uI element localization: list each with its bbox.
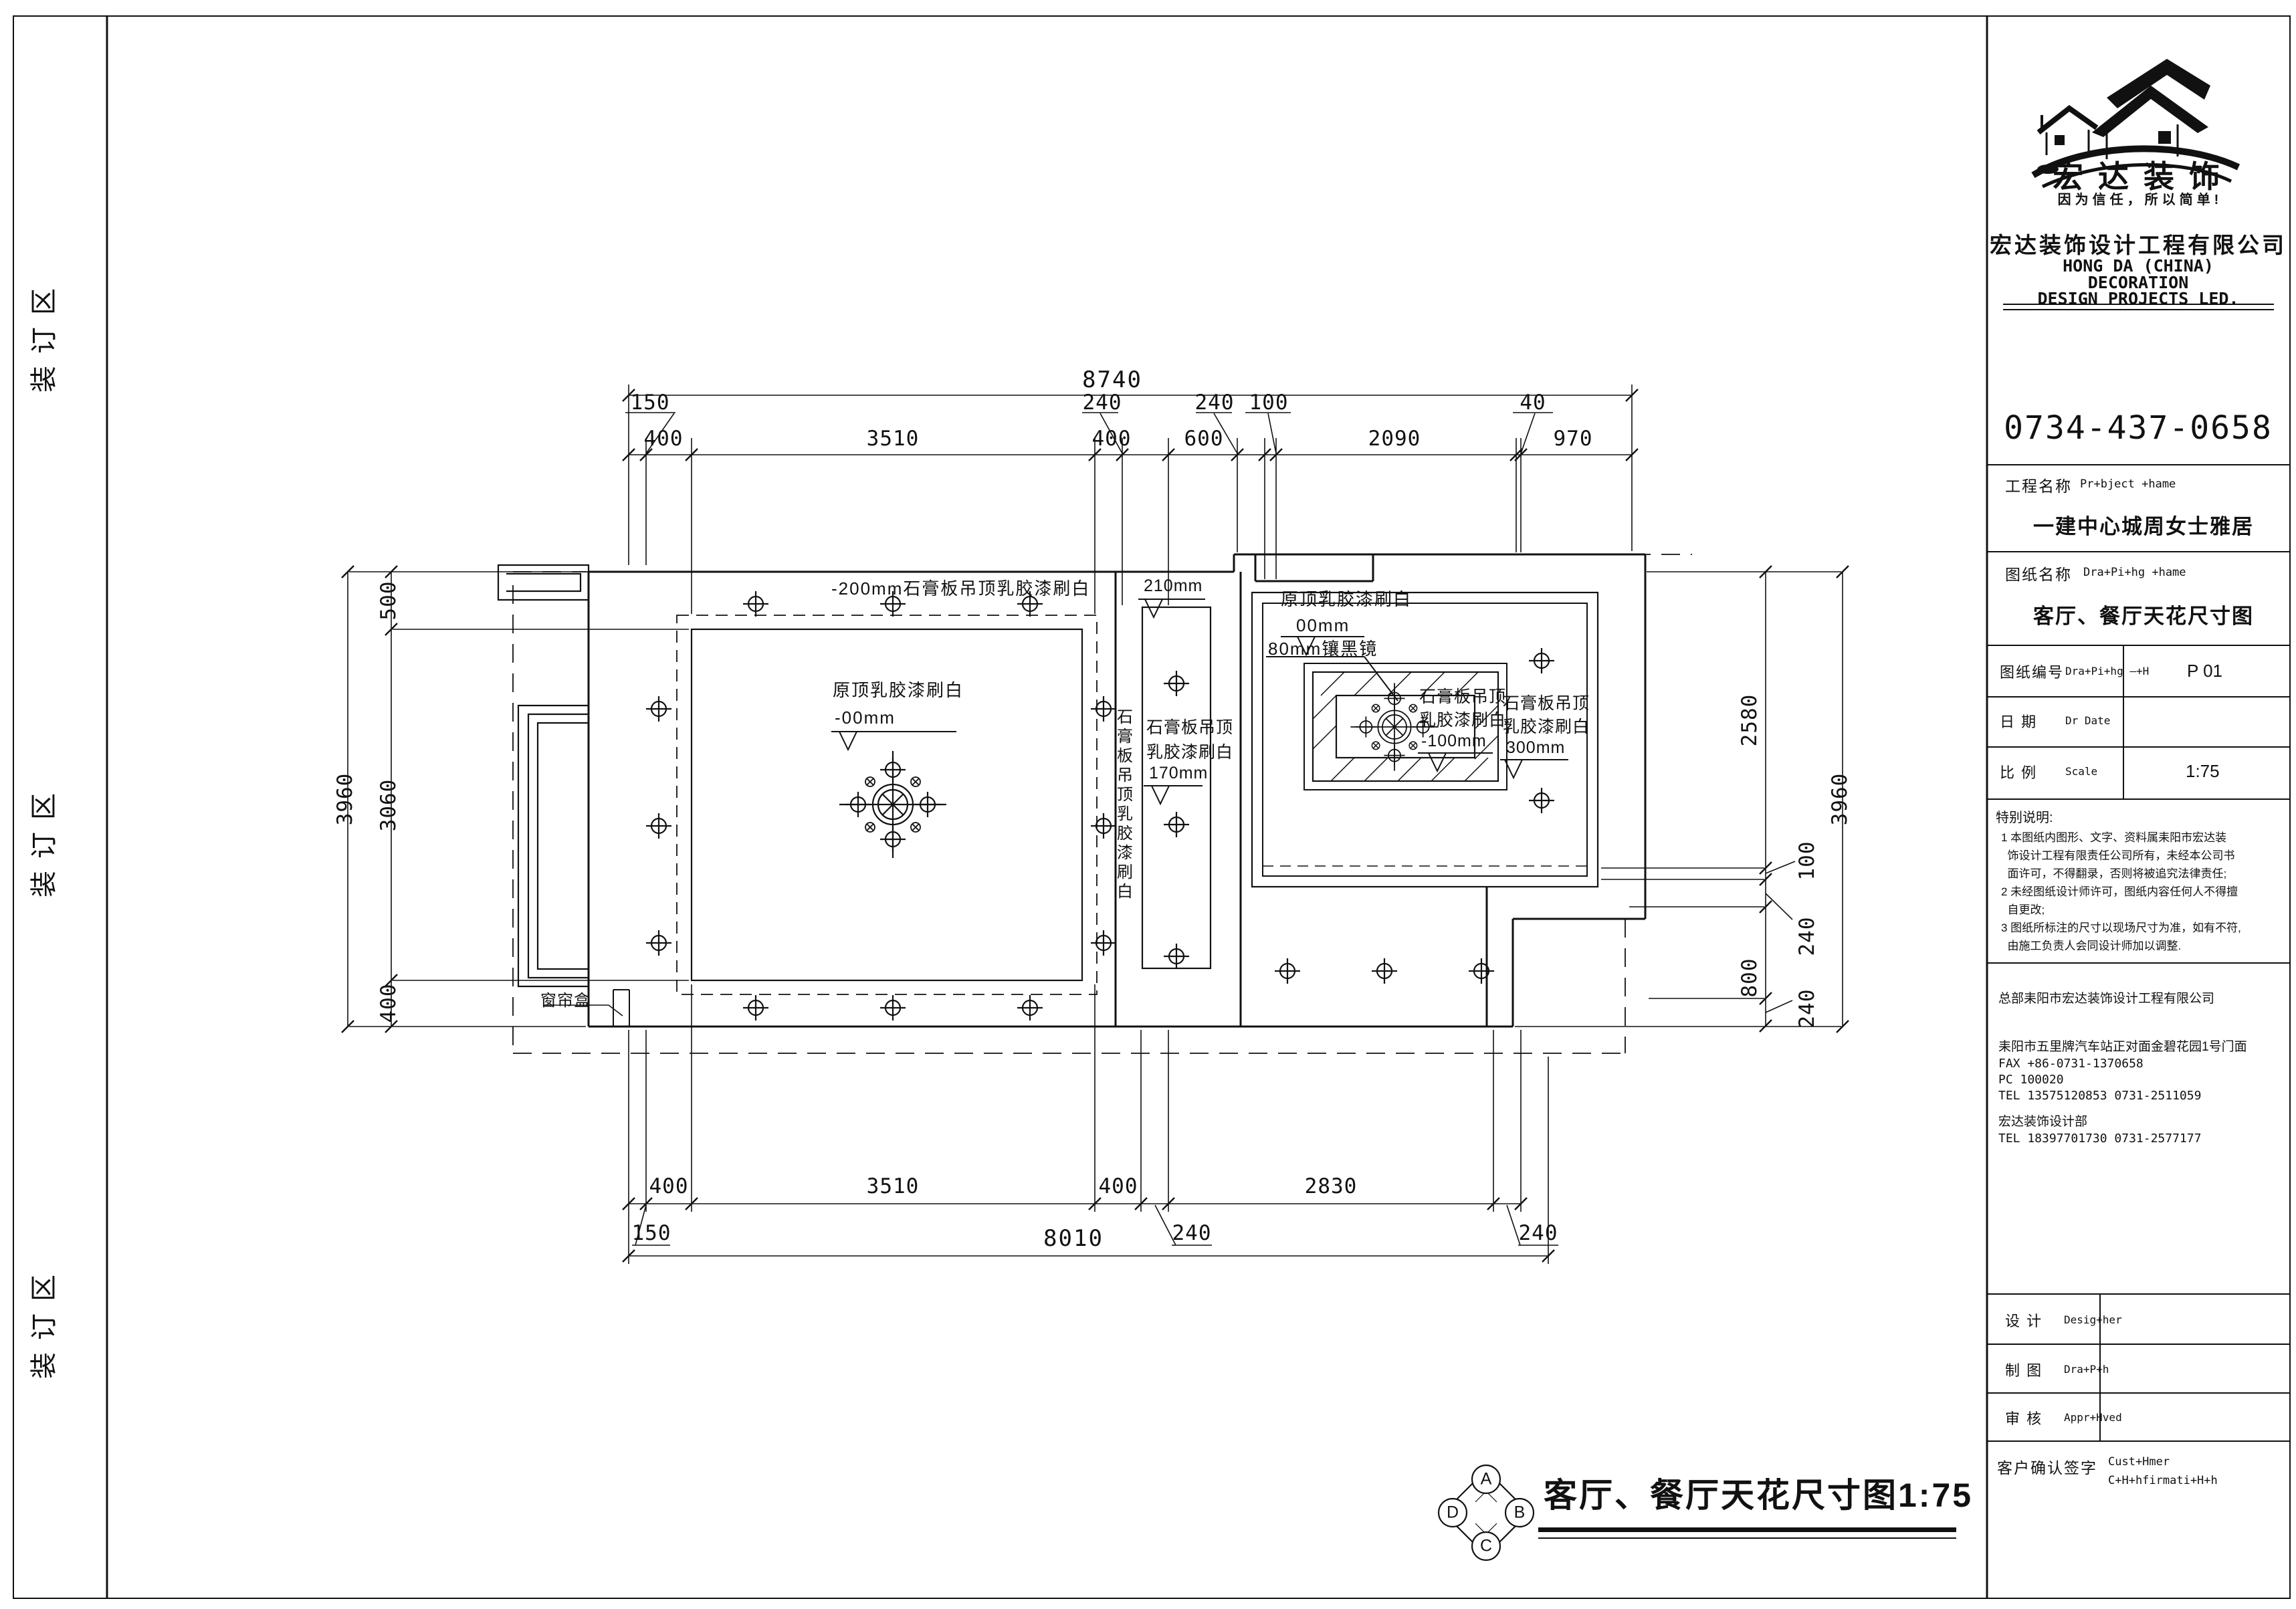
customer-label-en1: Cust+Hmer xyxy=(2108,1455,2170,1469)
binding-area-label-2: 装订区 xyxy=(22,781,61,897)
company-name-en-3: DESIGN PROJECTS LED. xyxy=(2037,289,2238,308)
designer-label-en: Desig+her xyxy=(2064,1313,2122,1326)
dim-top-3510: 3510 xyxy=(867,427,920,451)
dim-top-240a: 240 xyxy=(1083,391,1122,415)
dim-left-500: 500 xyxy=(377,581,401,621)
dim-left-400: 400 xyxy=(377,984,401,1023)
dim-bot-240b: 240 xyxy=(1519,1221,1558,1245)
company-name-cn: 宏达装饰设计工程有限公司 xyxy=(1990,227,2287,259)
dim-top-400b: 400 xyxy=(1092,427,1132,451)
project-label: 工程名称 xyxy=(2005,473,2072,496)
dim-top-400a: 400 xyxy=(644,427,684,451)
dim-bot-overall: 8010 xyxy=(1043,1225,1104,1252)
dim-left-3060: 3060 xyxy=(377,779,401,832)
ann-strip-side-vertical: 石膏板吊顶乳胶漆刷白 xyxy=(1117,708,1135,901)
notes-line-5: 自更改; xyxy=(2001,900,2045,917)
dim-top-40: 40 xyxy=(1520,391,1546,415)
binding-area-label-1: 装订区 xyxy=(22,276,61,393)
notes-line-2: 饰设计工程有限责任公司所有，未经本公司书 xyxy=(2001,846,2234,863)
dim-top-100: 100 xyxy=(1249,391,1289,415)
ann-strip-line1: 石膏板吊顶 xyxy=(1146,714,1233,738)
ann-right-line2: 乳胶漆刷白 xyxy=(1503,714,1590,738)
scale-value: 1:75 xyxy=(2186,761,2220,782)
notes-line-7: 由施工负责人会同设计师加以调整. xyxy=(2001,936,2181,953)
binding-area-label-3: 装订区 xyxy=(22,1263,61,1379)
ann-strip-210: 210mm xyxy=(1144,576,1203,596)
date-label-en: Dr Date xyxy=(2065,714,2110,727)
dim-bot-400a: 400 xyxy=(649,1174,689,1198)
approved-label: 审 核 xyxy=(2005,1407,2043,1428)
ann-dining-level: 00mm xyxy=(1296,615,1350,636)
notes-line-6: 3 图纸所标注的尺寸以现场尺寸为准，如有不符, xyxy=(2001,918,2241,935)
dimension-lines xyxy=(348,385,1843,1264)
dim-right-240a: 240 xyxy=(1795,917,1819,956)
dim-bot-240a: 240 xyxy=(1172,1221,1212,1245)
scale-label-en: Scale xyxy=(2065,765,2097,778)
drawing-no-value: P 01 xyxy=(2187,661,2222,681)
footer-title-rule xyxy=(1538,1527,1956,1538)
scale-label: 比 例 xyxy=(2000,761,2037,782)
ann-living-paint: 原顶乳胶漆刷白 xyxy=(833,677,964,702)
ann-frame-line2: 乳胶漆刷白 xyxy=(1419,707,1506,731)
ann-strip-line2: 乳胶漆刷白 xyxy=(1146,739,1233,763)
dim-right-100: 100 xyxy=(1795,841,1819,881)
tel1-line: TEL 13575120853 0731-2511059 xyxy=(1998,1089,2201,1103)
ann-dining-paint: 原顶乳胶漆刷白 xyxy=(1281,586,1412,611)
dim-bot-400b: 400 xyxy=(1099,1174,1138,1198)
ceiling-lights xyxy=(646,591,1554,1021)
dim-right-240b: 240 xyxy=(1795,989,1819,1029)
drawing-title: 客厅、餐厅天花尺寸图1:75 xyxy=(1544,1469,1973,1517)
notes-line-1: 1 本图纸内图形、文字、资料属耒阳市宏达装 xyxy=(2001,828,2226,845)
ann-curtain-box: 窗帘盒 xyxy=(540,987,591,1010)
customer-label-en2: C+H+hfirmati+H+h xyxy=(2108,1474,2218,1487)
drawing-no-label: 图纸编号 xyxy=(2000,661,2064,682)
dim-left-3960: 3960 xyxy=(333,773,357,826)
designer-label: 设 计 xyxy=(2005,1309,2043,1331)
address-line: 耒阳市五里牌汽车站正对面金碧花园1号门面 xyxy=(1998,1037,2247,1055)
dim-bot-3510: 3510 xyxy=(867,1174,920,1198)
hq-line: 总部耒阳市宏达装饰设计工程有限公司 xyxy=(1998,988,2214,1006)
compass-letter-d: D xyxy=(1447,1503,1459,1523)
dim-top-2090: 2090 xyxy=(1368,427,1421,451)
project-label-en: Pr+bject +hame xyxy=(2080,477,2176,491)
dim-right-800: 800 xyxy=(1738,958,1762,998)
chandelier-symbol xyxy=(839,751,946,858)
ann-living-level: -00mm xyxy=(835,708,896,728)
dim-top-970: 970 xyxy=(1554,427,1593,451)
notes-line-3: 面许可，不得翻录，否则将被追究法律责任; xyxy=(2001,864,2226,881)
drawing-name-label-en: Dra+Pi+hg +hame xyxy=(2083,566,2186,579)
approved-label-en: Appr+Hved xyxy=(2064,1411,2122,1424)
compass-letter-b: B xyxy=(1514,1503,1526,1523)
drawing-name-label: 图纸名称 xyxy=(2005,562,2072,584)
dim-bot-2830: 2830 xyxy=(1305,1174,1358,1198)
pc-line: PC 100020 xyxy=(1998,1073,2064,1087)
dim-right-3960: 3960 xyxy=(1828,773,1852,826)
dept-line: 宏达装饰设计部 xyxy=(1998,1111,2087,1130)
ann-right-line1: 石膏板吊顶 xyxy=(1503,690,1590,714)
ann-top-ceiling: -200mm石膏板吊顶乳胶漆刷白 xyxy=(831,575,1090,600)
ann-strip-line3: 170mm xyxy=(1149,764,1208,783)
compass-letter-c: C xyxy=(1480,1537,1492,1556)
drawing-name-value: 客厅、餐厅天花尺寸图 xyxy=(2033,599,2254,629)
ann-frame-line3: -100mm xyxy=(1421,732,1487,751)
drawing-no-label-en: Dra+Pi+hg —+H xyxy=(2065,665,2149,677)
ann-black-mirror: 80mm镶黑镜 xyxy=(1268,635,1378,660)
dim-top-overall: 8740 xyxy=(1082,366,1142,393)
project-name-value: 一建中心城周女士雅居 xyxy=(2033,510,2254,540)
company-phone: 0734-437-0658 xyxy=(2004,409,2273,447)
dim-right-2580: 2580 xyxy=(1738,694,1762,747)
drawn-label: 制 图 xyxy=(2005,1359,2043,1380)
notes-title: 特别说明: xyxy=(1996,807,2053,826)
customer-label: 客户确认签字 xyxy=(1997,1455,2097,1478)
fax-line: FAX +86-0731-1370658 xyxy=(1998,1057,2144,1071)
ann-frame-line1: 石膏板吊顶 xyxy=(1419,683,1506,708)
dim-top-600: 600 xyxy=(1184,427,1224,451)
dashed-boundary xyxy=(513,554,1692,1053)
logo-slogan: 因为信任，所以简单! xyxy=(2058,189,2223,208)
dim-bot-150: 150 xyxy=(632,1221,671,1245)
date-label: 日 期 xyxy=(2000,710,2037,732)
compass-letter-a: A xyxy=(1481,1470,1492,1489)
notes-line-4: 2 未经图纸设计师许可，图纸内容任何人不得擅 xyxy=(2001,882,2238,899)
dim-top-240b: 240 xyxy=(1195,391,1235,415)
tel2-line: TEL 18397701730 0731-2577177 xyxy=(1998,1132,2201,1146)
dim-top-150: 150 xyxy=(631,391,670,415)
ann-right-line3: 300mm xyxy=(1506,738,1565,758)
bay-window xyxy=(498,565,589,986)
drawing-sheet: 装订区 装订区 装订区 8740 150 400 3510 240 400 24… xyxy=(0,0,2296,1609)
drawn-label-en: Dra+P+h xyxy=(2064,1363,2109,1376)
